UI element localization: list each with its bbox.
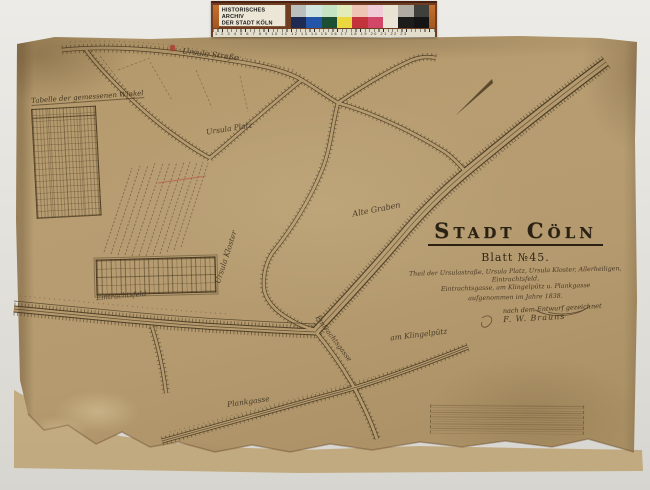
color-patch bbox=[322, 5, 337, 17]
handwritten-computations bbox=[104, 162, 208, 256]
bar-end-cap-right bbox=[429, 5, 435, 28]
ruler-numbers: 1 2 3 4 5 6 7 8 9 10 11 12 13 14 15 16 1… bbox=[215, 32, 408, 37]
color-patch bbox=[368, 17, 383, 29]
color-patch bbox=[337, 17, 352, 29]
angle-table bbox=[31, 106, 102, 219]
color-patch bbox=[306, 17, 321, 29]
color-calibration-bar: HISTORISCHES ARCHIV DER STADT KÖLN 1 2 3… bbox=[211, 1, 437, 37]
color-patch bbox=[337, 5, 352, 17]
sheet-number: Blatt №45. bbox=[408, 251, 623, 264]
archive-label-line-2: DER STADT KÖLN bbox=[222, 21, 284, 27]
red-survey-line bbox=[158, 176, 206, 183]
color-patch bbox=[383, 5, 398, 17]
color-patch bbox=[291, 17, 306, 29]
calibration-bar-top: HISTORISCHES ARCHIV DER STADT KÖLN bbox=[213, 5, 435, 28]
signature: nach dem Entwurf gezeichnet F. W. Brauns bbox=[503, 301, 624, 324]
archive-label-line-1: HISTORISCHES ARCHIV bbox=[222, 8, 284, 21]
color-patch bbox=[414, 17, 429, 29]
survey-needle bbox=[455, 79, 493, 116]
ruled-band bbox=[430, 404, 584, 434]
title-block: Stadt Cöln Blatt №45. Theil der Ursulast… bbox=[408, 218, 623, 321]
archive-label: HISTORISCHES ARCHIV DER STADT KÖLN bbox=[219, 5, 285, 26]
map-title: Stadt Cöln bbox=[428, 218, 603, 246]
patch-row-bottom bbox=[291, 17, 429, 29]
color-patch bbox=[306, 5, 321, 17]
archive-scan: Tabelle der gemessenen Winkel Eintrachts… bbox=[0, 0, 650, 490]
color-patch bbox=[352, 5, 367, 17]
color-patch bbox=[398, 5, 413, 17]
angle-table-header-rule bbox=[32, 115, 95, 119]
inner-plot-lines bbox=[100, 56, 248, 112]
plot-grid bbox=[96, 256, 217, 295]
color-patch bbox=[398, 17, 413, 29]
color-patch bbox=[322, 17, 337, 29]
ruler-strip: 1 2 3 4 5 6 7 8 9 10 11 12 13 14 15 16 1… bbox=[213, 29, 435, 37]
color-patch bbox=[352, 17, 367, 29]
map-description: Theil der Ursulastraße, Ursula Platz, Ur… bbox=[408, 265, 624, 295]
color-patch bbox=[414, 5, 429, 17]
color-patch bbox=[383, 17, 398, 29]
color-patch bbox=[368, 5, 383, 17]
patch-row-top bbox=[291, 5, 429, 17]
color-patch bbox=[291, 5, 306, 17]
color-patches bbox=[291, 5, 429, 28]
red-seal bbox=[170, 45, 175, 51]
